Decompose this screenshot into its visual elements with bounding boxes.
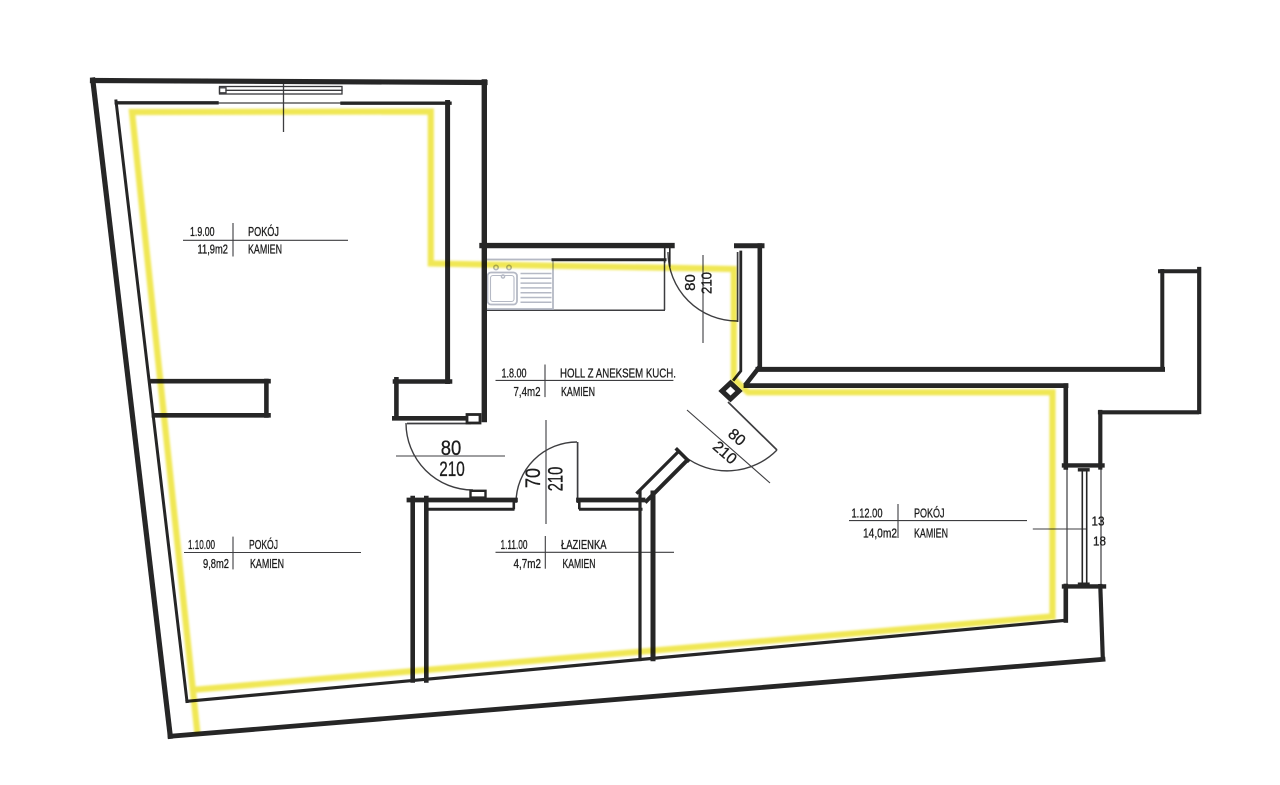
svg-text:KAMIEN: KAMIEN (561, 384, 595, 399)
svg-text:KAMIEN: KAMIEN (563, 556, 596, 571)
svg-text:80: 80 (682, 274, 699, 291)
svg-text:14,0m2: 14,0m2 (863, 526, 897, 541)
svg-text:80: 80 (441, 437, 462, 460)
svg-text:POKÓJ: POKÓJ (249, 537, 278, 552)
svg-text:ŁAZIENKA: ŁAZIENKA (561, 537, 607, 552)
svg-text:HOLL Z ANEKSEM KUCH.: HOLL Z ANEKSEM KUCH. (560, 366, 676, 381)
svg-text:210: 210 (699, 272, 716, 294)
svg-text:70: 70 (521, 468, 545, 488)
svg-text:18: 18 (1093, 534, 1106, 549)
svg-text:POKÓJ: POKÓJ (248, 224, 279, 239)
svg-text:1.12.00: 1.12.00 (852, 506, 883, 521)
svg-text:KAMIEN: KAMIEN (914, 526, 948, 541)
svg-text:11,9m2: 11,9m2 (198, 242, 229, 257)
svg-text:POKÓJ: POKÓJ (914, 506, 945, 521)
svg-text:1.11.00: 1.11.00 (501, 537, 528, 552)
svg-text:4,7m2: 4,7m2 (514, 556, 542, 571)
svg-text:7,4m2: 7,4m2 (514, 384, 541, 399)
svg-text:1.10.00: 1.10.00 (188, 537, 215, 552)
svg-text:210: 210 (439, 458, 465, 481)
svg-text:13: 13 (1092, 514, 1105, 529)
svg-text:KAMIEN: KAMIEN (248, 242, 282, 257)
svg-text:210: 210 (544, 467, 568, 492)
svg-text:9,8m2: 9,8m2 (203, 556, 229, 571)
svg-text:KAMIEN: KAMIEN (250, 556, 284, 571)
svg-text:1.9.00: 1.9.00 (190, 224, 215, 239)
svg-text:1.8.00: 1.8.00 (502, 366, 527, 381)
